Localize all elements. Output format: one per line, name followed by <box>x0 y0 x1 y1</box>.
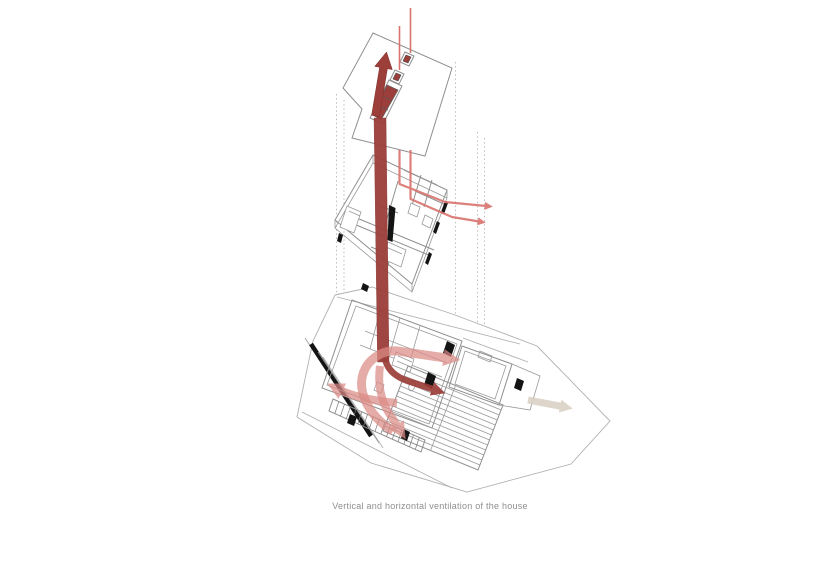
ground-floor-plan <box>297 247 610 492</box>
roof-plan <box>343 8 452 156</box>
ventilation-diagram-page: Vertical and horizontal ventilation of t… <box>0 0 818 578</box>
figure-caption: Vertical and horizontal ventilation of t… <box>280 501 580 511</box>
ventilation-axonometric-diagram <box>0 0 818 578</box>
